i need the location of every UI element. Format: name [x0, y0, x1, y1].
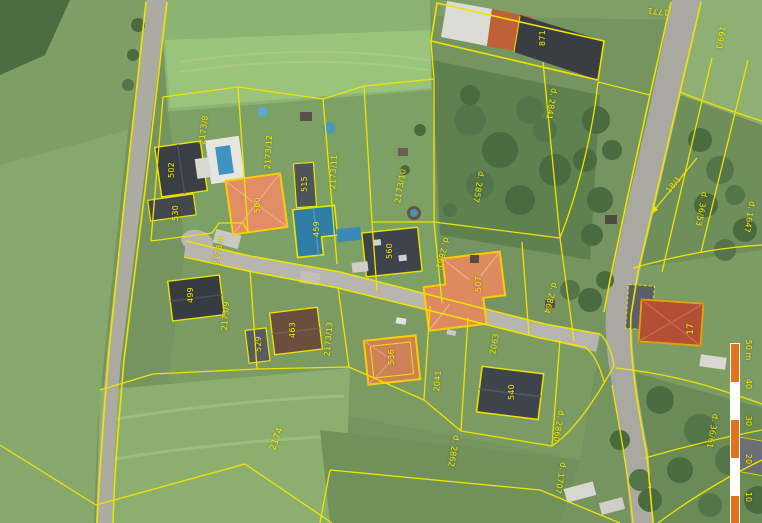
scale-tick-30: 30	[744, 416, 752, 426]
house-540-roof	[477, 366, 544, 419]
map-canvas[interactable]: 5022173/85302173/125005152173/114592173/…	[0, 0, 762, 523]
aerial-photo-layer	[0, 0, 762, 523]
outbuilding-515	[293, 162, 316, 207]
house-500-roof	[226, 173, 288, 234]
house-560-roof	[362, 227, 422, 277]
scale-tick-20: 20	[744, 454, 752, 464]
scale-tick-10: 10	[744, 492, 752, 502]
outbuilding-529	[245, 328, 270, 363]
scale-bar-segment	[731, 458, 739, 496]
map-scale-bar	[731, 344, 739, 523]
scale-bar-segment	[731, 420, 739, 458]
scale-tick-50m: 50 m	[744, 340, 752, 361]
house-499-roof	[168, 275, 224, 321]
scale-bar-segment	[731, 344, 739, 382]
scale-tick-40: 40	[744, 379, 752, 389]
scale-bar-segment	[731, 496, 739, 523]
scale-bar-segment	[731, 382, 739, 420]
house-463-roof	[270, 307, 323, 355]
